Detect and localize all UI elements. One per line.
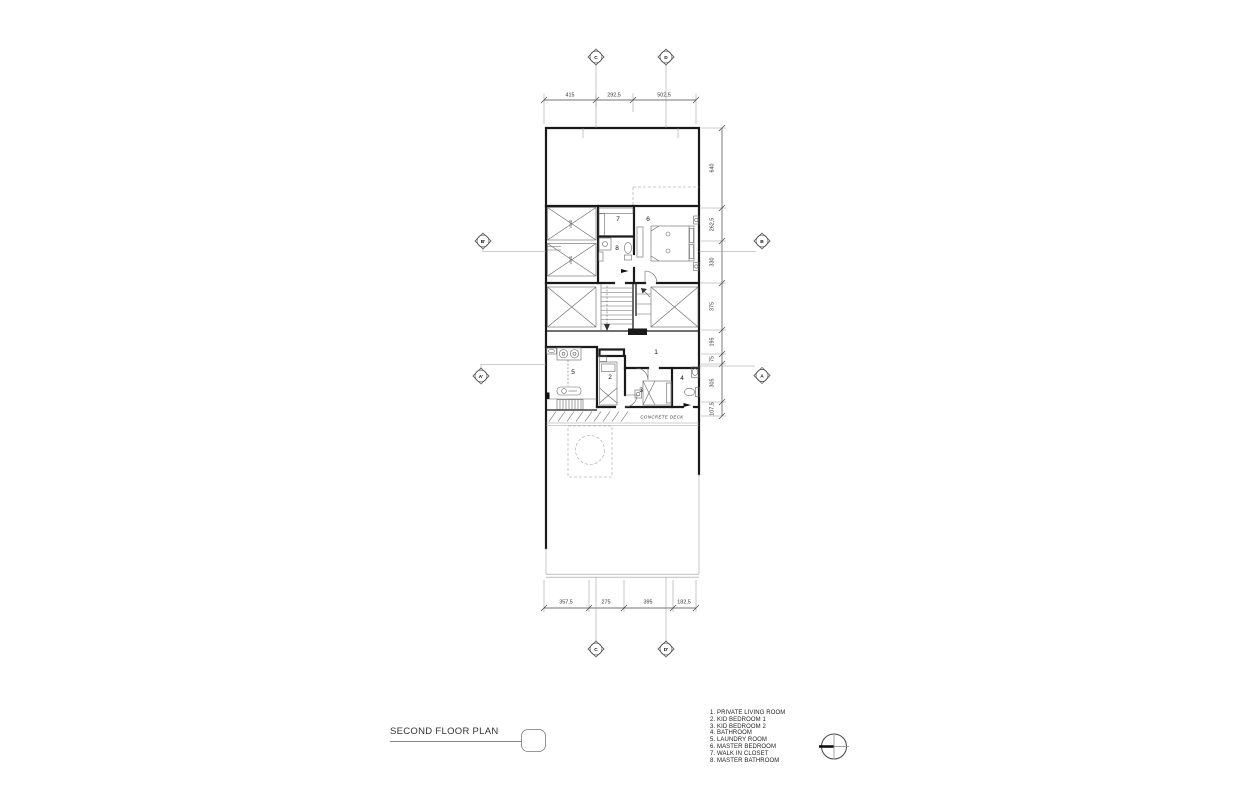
marker-section-b-left: B' — [475, 233, 491, 249]
legend-item-8: 8. MASTER BATHROOM — [710, 758, 785, 765]
dim-top-2: 502,5 — [657, 93, 671, 99]
dim-bottom-2: 395 — [644, 600, 653, 606]
room-label-bathroom: 4 — [680, 375, 684, 382]
marker-section-b-left-label: B' — [481, 239, 486, 245]
stair-up-arrow — [641, 288, 647, 294]
deck-label: CONCRETE DECK — [640, 415, 684, 420]
marker-section-a-right: A — [754, 367, 770, 383]
legend-item-1: 1. PRIVATE LIVING ROOM — [710, 710, 785, 717]
dim-bottom-0: 357,5 — [559, 600, 573, 606]
dim-right-1: 262,5 — [710, 218, 716, 232]
marker-bottom-c-label: C — [594, 647, 598, 653]
bathroom-fixtures — [685, 367, 700, 397]
dim-right-5: 75 — [710, 356, 716, 362]
marker-top-c: C — [588, 49, 604, 65]
dimension-chain-bottom: 357,5 275 395 182,5 — [541, 580, 699, 612]
void-label-upper: VOID — [569, 219, 573, 228]
marker-section-a-left-label: A' — [479, 374, 484, 380]
legend-item-7: 7. WALK IN CLOSET — [710, 751, 785, 758]
room-label-closet: 7 — [616, 216, 620, 223]
dim-right-7: 107,5 — [710, 402, 716, 416]
doors — [621, 269, 691, 407]
marker-bottom-d: D' — [658, 641, 674, 657]
room-label-kid2: 3 — [639, 387, 643, 394]
floor-plan-drawing: VOID VOID — [0, 0, 1260, 787]
marker-bottom-c: C — [588, 641, 604, 657]
dim-right-0: 640 — [710, 164, 716, 173]
compass-icon — [819, 734, 849, 760]
dim-right-2: 330 — [710, 258, 716, 267]
concrete-deck: CONCRETE DECK — [546, 412, 699, 426]
dim-right-3: 375 — [710, 302, 716, 311]
room-label-master: 6 — [646, 216, 650, 223]
room-label-living: 1 — [654, 349, 658, 356]
room-label-kid1: 2 — [608, 374, 612, 381]
staircase — [601, 284, 651, 331]
marker-top-c-label: C — [594, 55, 598, 61]
stair-down-arrow — [604, 324, 610, 331]
room-legend: 1. PRIVATE LIVING ROOM 2. KID BEDROOM 1 … — [710, 710, 785, 764]
master-bedroom-furniture — [637, 216, 699, 271]
floor-plan-sheet: VOID VOID — [0, 0, 1260, 787]
room-label-laundry: 5 — [571, 369, 575, 376]
legend-item-2: 2. KID BEDROOM 1 — [710, 717, 785, 724]
dimension-chain-right: 640 262,5 330 375 195 75 305 107,5 — [701, 125, 726, 419]
marker-top-d-label: D — [664, 55, 668, 61]
drawing-title: SECOND FLOOR PLAN — [390, 726, 499, 737]
legend-item-5: 5. LAUNDRY ROOM — [710, 737, 785, 744]
marker-section-b-right: B — [754, 233, 770, 249]
legend-item-3: 3. KID BEDROOM 2 — [710, 724, 785, 731]
marker-top-d: D — [658, 49, 674, 65]
dim-top-0: 415 — [566, 93, 575, 99]
void-label-lower: VOID — [569, 255, 573, 264]
room-label-master-bath: 8 — [615, 245, 619, 252]
void-boxes: VOID VOID — [548, 208, 699, 328]
dim-bottom-1: 275 — [602, 600, 611, 606]
dimension-chain-top: 415 292,5 502,5 — [541, 93, 699, 125]
marker-section-b-right-label: B — [760, 239, 764, 245]
legend-item-4: 4. BATHROOM — [710, 730, 785, 737]
door-arrow-bathroom — [684, 403, 692, 407]
dim-top-1: 292,5 — [607, 93, 621, 99]
marker-section-a-right-label: A — [760, 373, 764, 379]
top-roof-zone — [583, 128, 699, 206]
dim-right-6: 305 — [710, 379, 716, 388]
laundry-fittings — [546, 348, 583, 410]
legend-item-6: 6. MASTER BEDROOM — [710, 744, 785, 751]
door-arrow-master-bath — [621, 269, 629, 273]
dim-bottom-3: 182,5 — [677, 600, 691, 606]
marker-section-a-left: A' — [473, 368, 489, 384]
marker-bottom-d-label: D' — [664, 647, 669, 653]
tree-planter — [568, 426, 612, 477]
dim-right-4: 195 — [710, 338, 716, 347]
